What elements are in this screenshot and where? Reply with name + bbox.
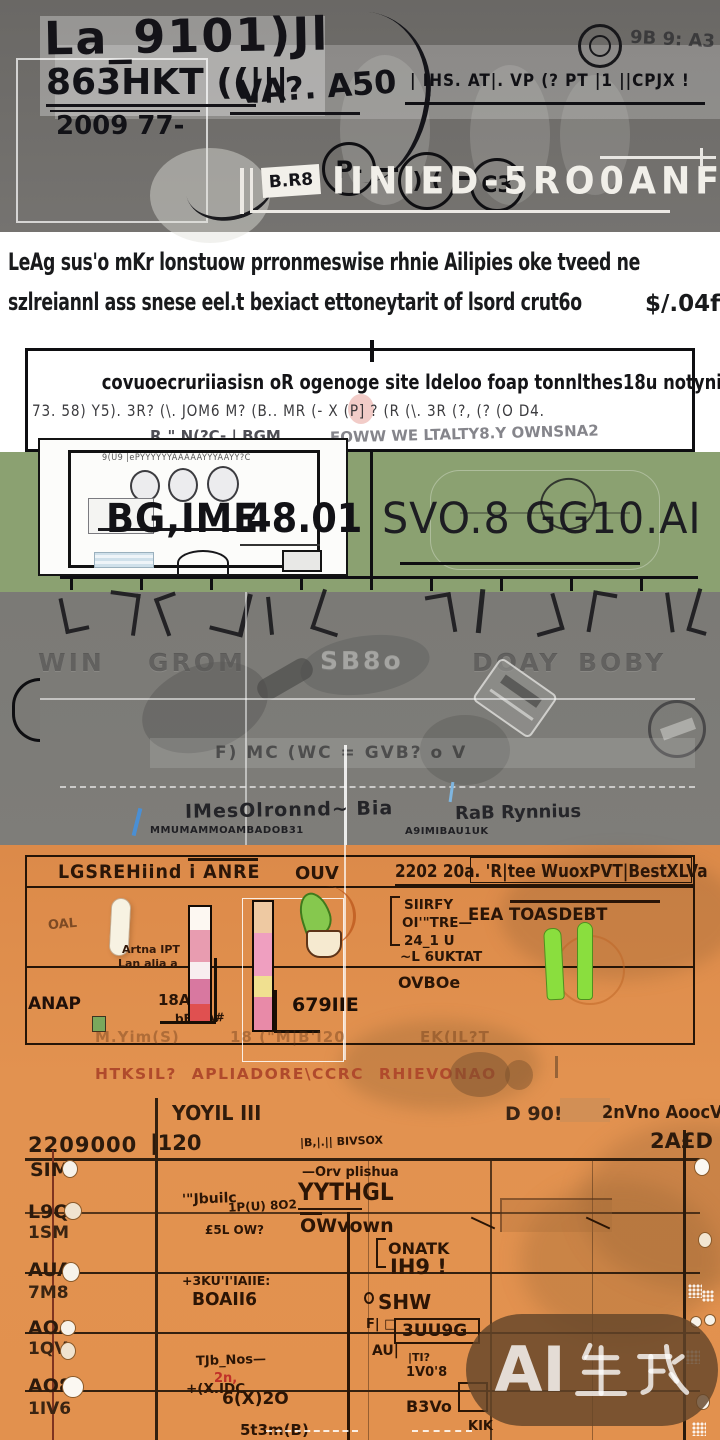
spec-col1-header: LGSREHiind i ANRE — [58, 862, 260, 883]
gray-caption-right: RaB Rynnius — [455, 802, 581, 824]
axis-label-right: 2A£D — [650, 1130, 713, 1153]
spec-col3-frame — [470, 857, 692, 883]
sparkle-texture-icon — [702, 1290, 714, 1302]
caption-tick — [555, 1056, 558, 1078]
task-label: F| □ — [366, 1318, 396, 1332]
bar-segment — [254, 902, 272, 933]
base-tick — [570, 579, 573, 591]
task-bracket — [376, 1238, 386, 1268]
plan-label: BG,IME — [106, 498, 259, 541]
table-footer-faint: M.Yim(S) — [95, 1028, 180, 1046]
step-line — [160, 1021, 216, 1024]
grid-vline — [155, 1098, 158, 1440]
spec-hline-1 — [25, 886, 695, 888]
bar-segment — [254, 976, 272, 996]
table-footer-faint: 18 ("M|B'I20 — [230, 1028, 346, 1046]
row-sub-label: 7M8 — [28, 1284, 69, 1302]
sparkle-texture-icon — [692, 1422, 706, 1436]
banner-bar — [240, 168, 244, 214]
notice-glyph-row: 73. 58) Y5). 3R? (\. JOM6 M? (B.. MR (- … — [32, 402, 545, 419]
base-tick — [430, 579, 433, 591]
striped-bar-2 — [252, 900, 274, 1032]
schedule-header-mid: YOYIL III — [172, 1103, 261, 1125]
task-label: B3Vo — [406, 1398, 452, 1415]
spec-mid-value: 679IIE — [292, 995, 359, 1016]
intro-line-2: szlreiannl ass snese eel.t bexiact etton… — [8, 290, 582, 316]
gray-caption-left: IMesOlronnd~ Bia — [185, 798, 394, 822]
progress-dashed-line — [266, 1430, 358, 1432]
progress-dashed-line — [412, 1430, 472, 1432]
row-sub-label: 1IV6 — [28, 1400, 71, 1418]
logo-underline — [46, 104, 256, 107]
row-sub-label: 1SM — [28, 1224, 69, 1242]
edge-marker — [694, 1158, 710, 1176]
scribble-face-inner — [589, 35, 611, 57]
schedule-caption: HTKSIL? APLIADORE\CCRC RHIEVONAO — [95, 1066, 497, 1083]
spec-col1-overline — [188, 858, 258, 861]
logo-scribble-1: La_9101)Jl — [44, 10, 330, 65]
axis-label-mid: |120 — [150, 1132, 202, 1155]
task-label: £5L OW? — [205, 1224, 264, 1237]
task-label: IH9 ! — [390, 1256, 447, 1279]
strip-glyphs: F) MC (WC = GVB? o V — [215, 744, 467, 762]
task-label: BOAII6 — [192, 1290, 257, 1309]
embossed-word: SB8o — [320, 646, 404, 675]
scanned-document-page: { "header": { "logo_line1": "La_9101)Jl"… — [0, 0, 720, 1440]
banner-underline — [250, 210, 670, 213]
mid-underline — [230, 112, 360, 115]
bar-segment — [190, 962, 210, 979]
right-title-overline — [510, 900, 660, 903]
cjk-cheng-glyph — [634, 1342, 690, 1398]
banner-rule-right — [600, 156, 716, 159]
header-photo-band: La_9101)Jl 863HKT ((||| 2009 77- VA?. A5… — [0, 0, 720, 232]
task-marker-dot — [364, 1292, 374, 1304]
task-label: +3KU'I'IAIIE: — [182, 1274, 270, 1288]
task-label: 6(X)2O — [222, 1390, 289, 1408]
bar-caption-1: Artna IPT — [122, 944, 180, 956]
right-list-item: ~L 6UKTAT — [400, 950, 482, 965]
caption-blob — [505, 1060, 533, 1090]
bar-segment — [190, 1004, 210, 1021]
striped-bar-1 — [188, 905, 212, 1023]
plan-scribble-top: 9(U9 |ePYYYYYYAAAAAYYYAAYY?C — [102, 454, 251, 464]
green-bar-1 — [543, 928, 565, 1001]
task-label: YYTHGL — [298, 1180, 394, 1206]
ink-scribble-icon — [266, 595, 290, 635]
plan-card: 9(U9 |ePYYYYYYAAAAAYYYAAYY?C BG,IME 48.0… — [38, 438, 348, 576]
grid-hline — [25, 1158, 700, 1161]
bar-caption-2: Lan alia a — [118, 958, 178, 970]
watermark-latin-text: AI — [494, 1339, 565, 1401]
edge-marker — [698, 1232, 712, 1248]
bar-segment — [190, 930, 210, 962]
banner-tag: B.R8 — [261, 164, 321, 198]
spec-col2-header: OUV — [295, 864, 339, 883]
table-footer-faint: EK(IL?T — [420, 1028, 490, 1046]
banner-title: IINIED-5RO0ANF — [332, 162, 720, 203]
base-tick — [640, 579, 643, 591]
grid-hline — [25, 1272, 700, 1274]
schedule-header-right-1: D 90! — [505, 1104, 563, 1125]
permit-underline — [405, 102, 705, 105]
step-line — [214, 958, 217, 1022]
task-label: SHW — [378, 1292, 431, 1314]
edge-marker — [704, 1314, 716, 1326]
task-box-vline — [347, 1212, 350, 1440]
ink-scribble-icon — [105, 590, 141, 636]
corner-marks: 9B 9: A3 — [630, 28, 716, 52]
task-label: TJb_Nos— — [196, 1353, 267, 1369]
task-label: '"Jbuilc — [182, 1191, 237, 1208]
right-list-item: 24_1 U — [404, 934, 455, 949]
gray-vline-2 — [344, 745, 347, 845]
cjk-sheng-glyph — [572, 1342, 628, 1398]
row-marker — [60, 1342, 76, 1360]
spec-col3-underline — [395, 884, 693, 886]
notice-center-tick — [370, 340, 374, 362]
ink-scribble-icon — [643, 592, 674, 635]
plan-value: 48.01 — [246, 498, 362, 541]
base-tick — [500, 579, 503, 591]
right-list-item: SIIRFY — [404, 898, 453, 913]
banner-bar — [250, 168, 253, 212]
task-label: |TI? — [408, 1352, 430, 1364]
bar-segment — [190, 979, 210, 1004]
green-center-divider — [370, 452, 373, 590]
plan-arch — [177, 550, 229, 576]
intro-line-1: LeAg sus'o mKr lonstuow prronmeswise rhn… — [8, 250, 640, 276]
task-label: OWvown — [300, 1216, 394, 1237]
task-label: AU| — [372, 1344, 399, 1359]
plan-corner-rect — [282, 550, 322, 572]
task-tilde-line — [300, 1212, 322, 1215]
intro-amount: $/.04f — [645, 292, 720, 317]
plan-underline — [240, 544, 320, 546]
green-base-line — [60, 576, 698, 579]
ink-scribble-icon — [476, 589, 502, 635]
gray-caption-small-2: A9IMIBAU1UK — [405, 827, 489, 838]
gray-caption-small-1: MMUMAMMOAMBADOB31 — [150, 826, 304, 837]
embossed-word: WIN — [38, 648, 105, 677]
permit-scribble-line: | IHS. AT|. VP (? PT |1 ||CPJX ! — [410, 72, 690, 90]
logo-scribble-3: 2009 77- — [56, 112, 184, 140]
plan-pool-rect — [94, 552, 154, 568]
schedule-header-right-2: 2nVno AoocVb — [602, 1103, 720, 1122]
spec-left-footer: ANAP — [28, 995, 81, 1013]
task-label: 1V0'8 — [406, 1366, 447, 1380]
plant-pot-icon — [306, 930, 342, 958]
scribble-face-icon — [578, 24, 622, 68]
right-list-item: OI'"TRE— — [402, 916, 472, 931]
caption-blob — [450, 1052, 510, 1097]
bar-segment — [190, 907, 210, 930]
row-marker — [62, 1262, 80, 1282]
spec-left-mark: OAL — [47, 917, 77, 934]
axis-label-left: 2209000 — [28, 1134, 137, 1157]
row-marker — [62, 1160, 78, 1178]
embossed-word: BOBY — [578, 648, 666, 677]
step-line — [274, 990, 277, 1032]
row-marker — [60, 1320, 76, 1336]
row-marker — [62, 1376, 84, 1398]
right-value: OVBOe — [398, 974, 460, 991]
task-underline — [298, 1208, 362, 1210]
row-marker — [64, 1202, 82, 1220]
bar-segment — [254, 933, 272, 977]
sparkle-texture-icon — [688, 1284, 702, 1298]
task-label: 3UU9G — [402, 1322, 467, 1340]
task-label-red: 2n, — [214, 1372, 237, 1386]
headline-underline — [400, 562, 640, 565]
gray-dashed-rule — [60, 786, 695, 788]
gray-white-rule — [25, 698, 695, 700]
right-list-bracket — [390, 896, 400, 946]
gantt-step-region — [500, 1198, 612, 1232]
bar-segment — [254, 997, 272, 1030]
green-bar-2 — [577, 922, 593, 1000]
notice-title: covuoecruriiasisn oR ogenoge site ldeloo… — [102, 372, 619, 394]
ai-generated-watermark: AI — [466, 1314, 718, 1426]
